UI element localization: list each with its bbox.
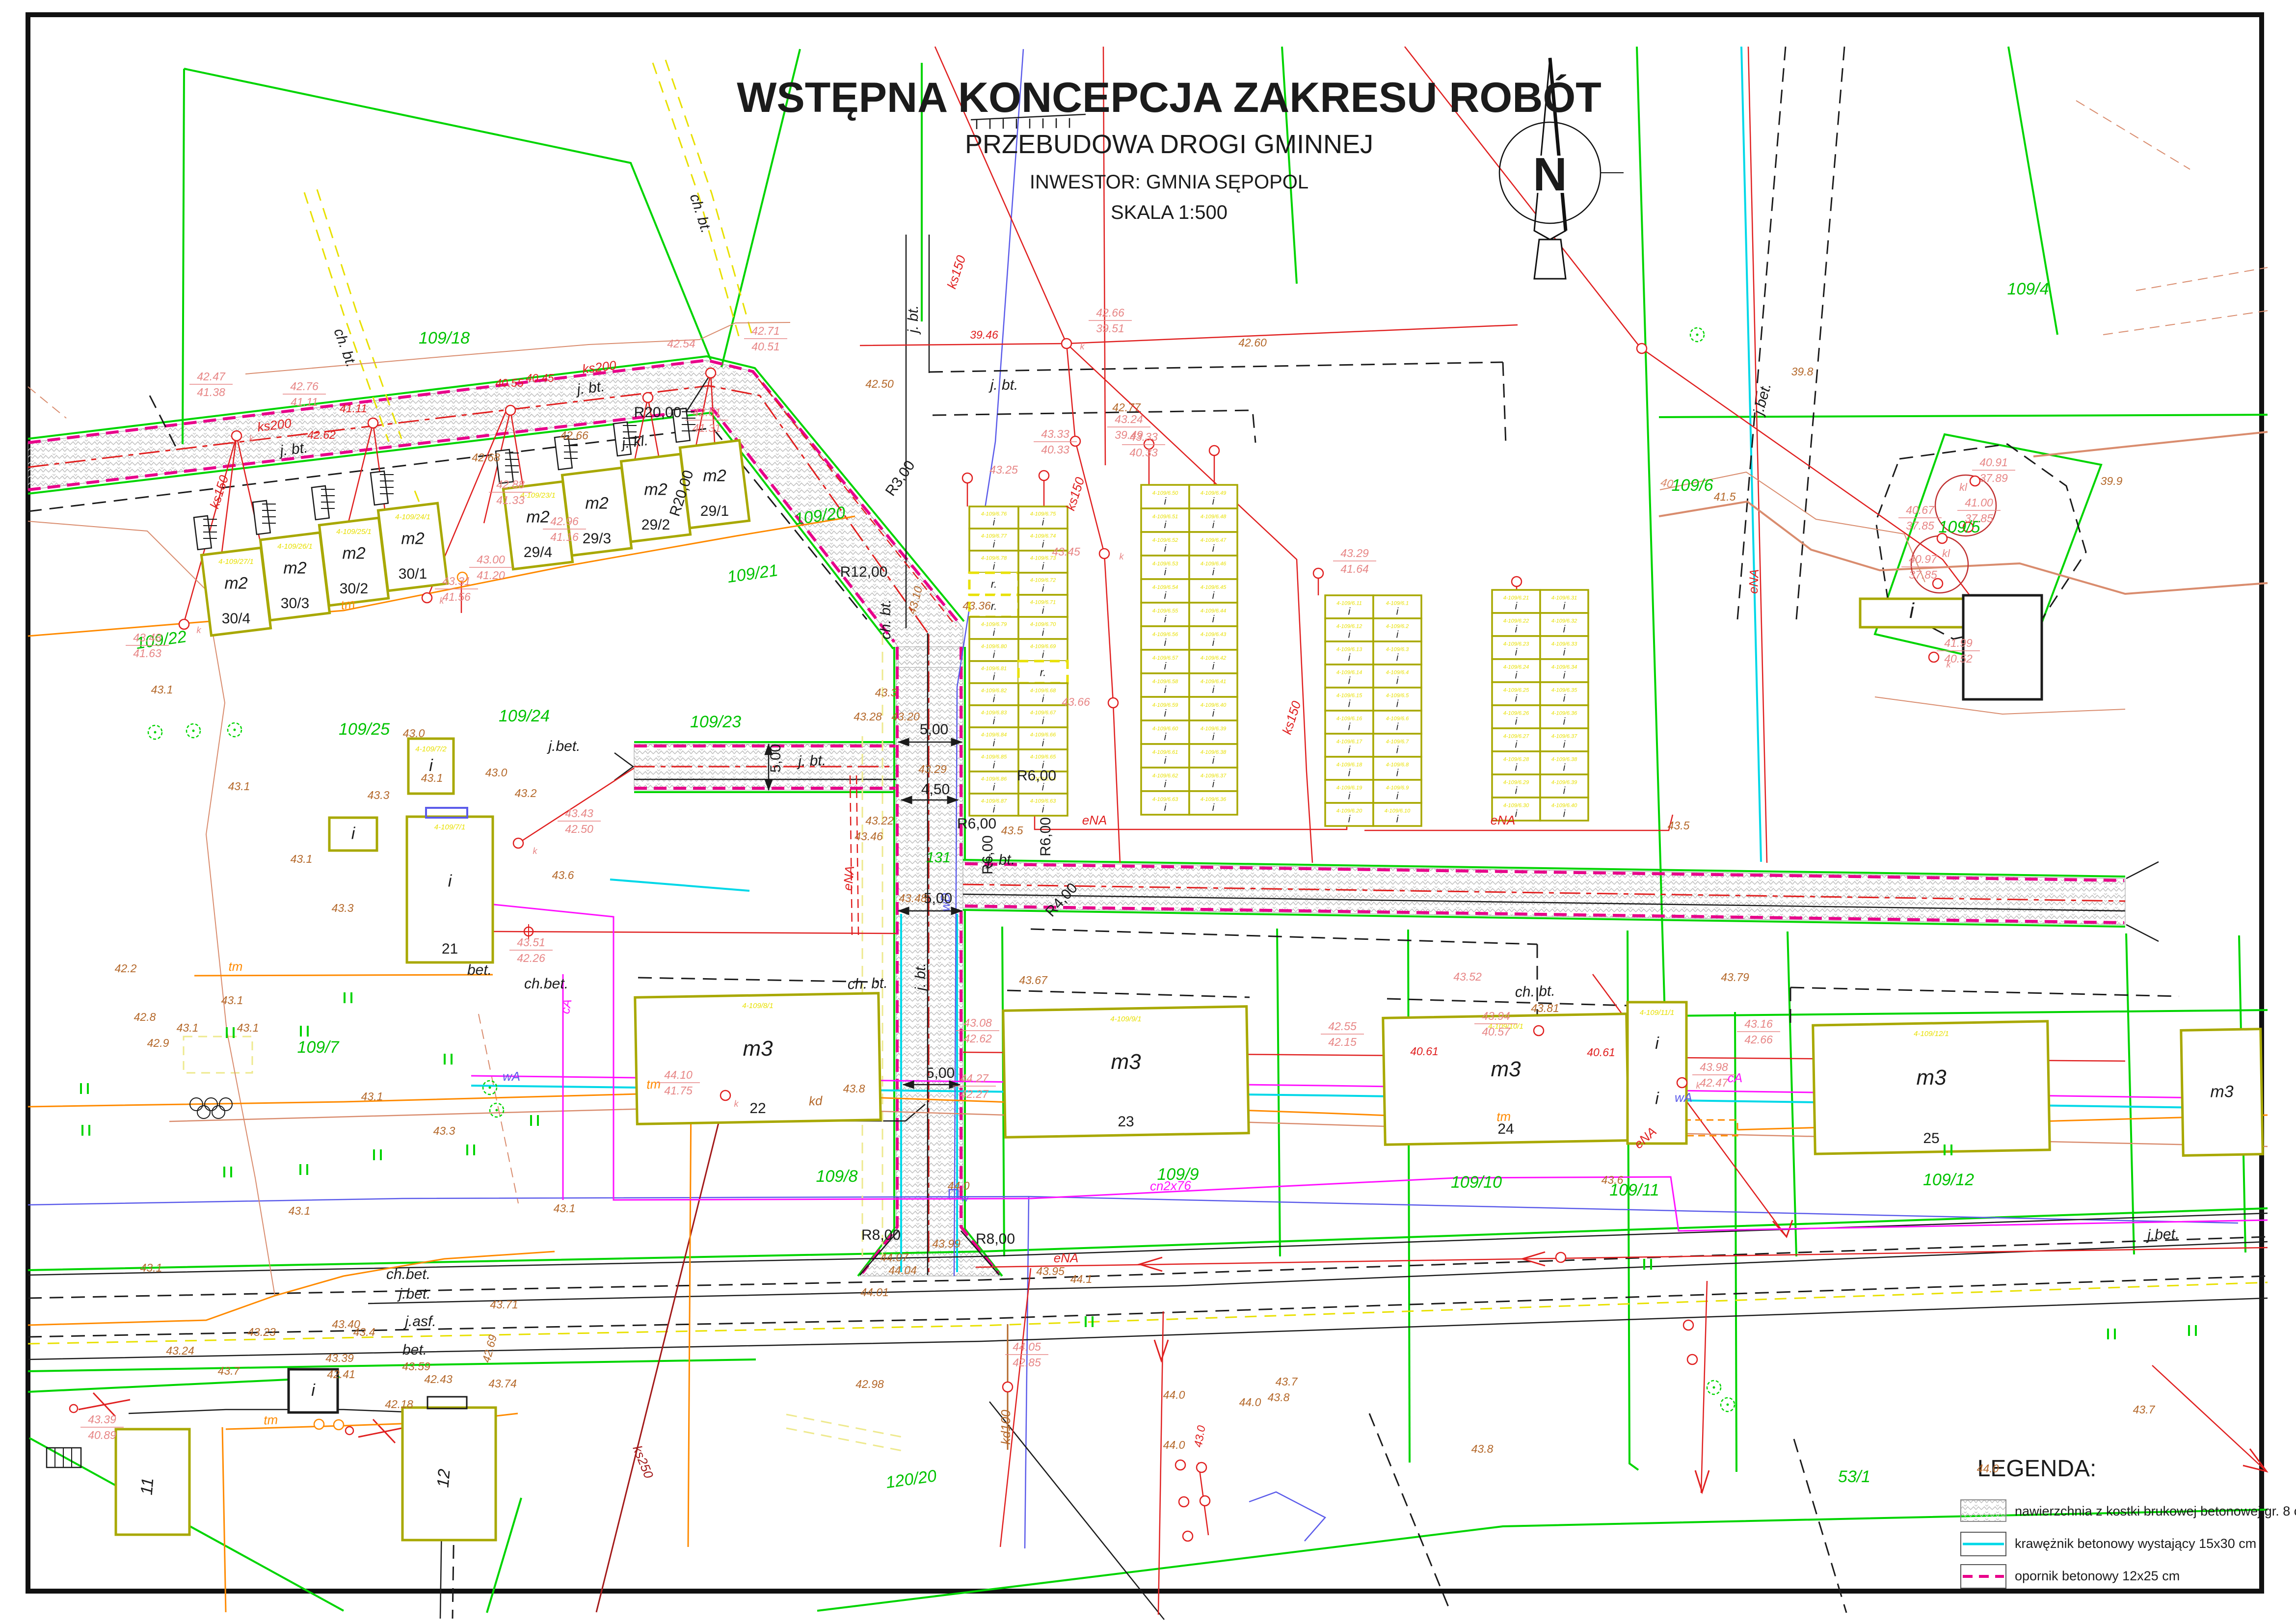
- elevation-top: 42.66: [1096, 306, 1124, 319]
- line-black: [2126, 925, 2159, 941]
- parcel-line: [184, 69, 711, 360]
- garage-cell-label: i: [1164, 543, 1167, 554]
- manhole: [1534, 1026, 1544, 1036]
- dimension-label: 5,00: [924, 890, 952, 906]
- surface-label: bet.: [402, 1342, 427, 1358]
- garage-cell-id: 4-109/6.39: [1201, 726, 1227, 732]
- garage-cell-id: 4-109/6.20: [1336, 808, 1362, 814]
- garage-cell-label: i: [1212, 779, 1215, 790]
- elevation-top: 42.61: [693, 406, 721, 419]
- garage-cell-id: 4-109/6.9: [1386, 785, 1409, 791]
- elevation-bottom: 41.20: [477, 569, 505, 582]
- existing-edge-dashed: [1737, 47, 1786, 619]
- manhole: [513, 838, 523, 848]
- garage-reserved-label: r.: [991, 600, 997, 612]
- garage-cell-label: i: [1212, 614, 1215, 625]
- yard-dashed: [184, 1037, 252, 1073]
- garage-cell-label: i: [1348, 791, 1351, 802]
- existing-edge-dashed: [1794, 1439, 1846, 1613]
- manhole: [368, 418, 378, 428]
- garage-cell-label: i: [1042, 738, 1044, 749]
- surface-label: j.asf.: [403, 1313, 436, 1330]
- parcel-label: 109/21: [726, 561, 779, 586]
- elevation-bottom: 42.15: [1328, 1036, 1357, 1048]
- spot-elevation: 42.50: [865, 377, 894, 390]
- garage-cell-label: i: [1164, 496, 1167, 507]
- survey-mark: [346, 1427, 353, 1435]
- garage-cell-label: i: [1396, 814, 1399, 825]
- building-id: 4-109/26/1: [277, 542, 313, 551]
- garage-cell-id: 4-109/6.8: [1386, 762, 1409, 768]
- garage-cell-id: 4-109/6.22: [1503, 618, 1529, 624]
- garage-cell-id: 4-109/6.38: [1201, 749, 1227, 755]
- garage-cell-label: i: [1212, 567, 1215, 578]
- garage-cell-id: 4-109/6.5: [1386, 693, 1409, 699]
- water-line: [1249, 1492, 1325, 1541]
- garage-cell-label: i: [1515, 601, 1518, 612]
- utility-label: tm: [340, 596, 356, 612]
- building-type: m3: [2210, 1083, 2233, 1101]
- garage-cell-label: i: [1212, 520, 1215, 531]
- legend-item-label: nawierzchnia z kostki brukowej betonowej…: [2015, 1504, 2296, 1518]
- manhole: [1070, 436, 1080, 446]
- garage-cell-label: i: [1212, 590, 1215, 601]
- elevation-bottom: 42.50: [565, 823, 593, 835]
- spot-elevation: 43.23: [247, 1326, 276, 1338]
- spot-elevation: 42.62: [307, 428, 336, 441]
- building-number: 22: [749, 1100, 766, 1117]
- garage-cell-label: i: [993, 694, 995, 705]
- garage-cell-label: i: [1563, 809, 1566, 820]
- spot-elevation: 42.43: [424, 1373, 453, 1385]
- grass-symbol: [2189, 1325, 2196, 1336]
- garage-cell-label: i: [993, 650, 995, 661]
- garage-cell-label: i: [1348, 814, 1351, 825]
- tm-line: [194, 975, 493, 976]
- dimension-label: 5,00: [920, 721, 948, 738]
- garage-cell-id: 4-109/6.68: [1030, 688, 1056, 694]
- dimension-label: 4,50: [921, 781, 950, 798]
- dimension-label: 5,00: [926, 1065, 955, 1081]
- building-number: 23: [1118, 1114, 1134, 1130]
- building-type: m2: [526, 508, 549, 527]
- manhole: [1062, 339, 1071, 348]
- surface-label: j.bet.: [2145, 1226, 2180, 1243]
- elevation-bottom: 41.16: [550, 531, 579, 543]
- utility-label: eNA: [1491, 813, 1516, 827]
- garage-cell-label: i: [1348, 699, 1351, 710]
- garage-cell-label: i: [1563, 786, 1566, 797]
- garage-cell-label: i: [1348, 745, 1351, 756]
- spot-elevation: 43.46: [854, 830, 883, 843]
- spot-elevation: 43.52: [1453, 970, 1482, 983]
- spot-elevation: 43.1: [421, 772, 443, 784]
- garage-reserved-label: r.: [1040, 666, 1046, 679]
- garage-cell-id: 4-109/6.81: [981, 666, 1007, 672]
- garage-cell-label: i: [993, 539, 995, 550]
- garage-cell-label: i: [1515, 670, 1518, 681]
- grass-symbol: [345, 992, 351, 1003]
- survey-mark: [373, 1419, 395, 1443]
- utility-label: tm: [646, 1077, 661, 1092]
- garage-cell-label: i: [1348, 676, 1351, 687]
- elevation-bottom: 37.85: [1909, 568, 1937, 581]
- utility-label: eNA: [840, 865, 857, 891]
- spot-elevation: 44.0: [1977, 1462, 1999, 1475]
- elevation-bottom: 42.85: [1013, 1356, 1041, 1369]
- garage-cell-label: i: [1212, 638, 1215, 648]
- spot-elevation: 43.3: [875, 686, 897, 699]
- parcel-label: 109/8: [816, 1167, 857, 1186]
- manhole-k: k: [249, 434, 254, 444]
- spot-elevation: 43.4: [353, 1326, 375, 1338]
- stairs-icon: [371, 471, 388, 505]
- garage-cell-label: i: [1042, 628, 1044, 639]
- dimension-label: R12,00: [840, 564, 888, 580]
- building-number: 29/3: [583, 531, 611, 547]
- elevation-bottom: 40.51: [751, 340, 780, 353]
- spot-elevation: 44.1: [1070, 1273, 1093, 1285]
- line-black: [2126, 862, 2159, 879]
- elevation-top: 42.47: [197, 370, 226, 383]
- garage-cell-label: i: [993, 517, 995, 528]
- manhole: [643, 393, 653, 402]
- spot-elevation: 43.1: [237, 1021, 259, 1034]
- garage-cell-label: i: [993, 760, 995, 771]
- building-id: 4-109/9/1: [1110, 1015, 1141, 1023]
- parcel-label: 109/25: [339, 720, 390, 739]
- stairs-icon: [312, 486, 329, 520]
- garage-cell-id: 4-109/6.38: [1551, 757, 1577, 763]
- manhole: [1209, 446, 1219, 455]
- legend-item-label: krawężnik betonowy wystający 15x30 cm: [2015, 1536, 2256, 1551]
- manhole: [1003, 1382, 1013, 1392]
- tm-line: [688, 1093, 691, 1547]
- manhole: [1683, 1320, 1693, 1330]
- grass-symbol: [1644, 1259, 1651, 1270]
- garage-cell-id: 4-109/6.40: [1551, 803, 1577, 809]
- garage-cell-id: 4-109/6.57: [1152, 655, 1178, 661]
- garage-cell-label: i: [993, 804, 995, 815]
- manhole: [1200, 1496, 1210, 1506]
- spot-elevation: 43.1: [291, 852, 313, 865]
- parcel-label: 109/24: [499, 707, 550, 725]
- stairs-icon: [194, 516, 212, 550]
- manhole: [422, 593, 432, 603]
- garage-cell-id: 4-109/6.76: [981, 511, 1007, 517]
- spot-elevation: 43.6: [552, 869, 574, 881]
- spot-elevation: 43.71: [490, 1298, 518, 1311]
- garage-cell-id: 4-109/6.75: [1030, 511, 1056, 517]
- elevation-top: 43.33: [1041, 427, 1069, 440]
- utility-label: tm: [229, 959, 243, 974]
- tm-line: [28, 1251, 555, 1325]
- manhole: [1197, 1463, 1206, 1472]
- spot-elevation: 40.55: [495, 376, 524, 389]
- utility-red: [494, 932, 896, 933]
- garage-cell-id: 4-109/6.67: [1030, 710, 1056, 716]
- existing-edge-dashed: [929, 362, 1503, 372]
- spot-elevation: 39.46: [970, 328, 998, 341]
- garage-cell-label: i: [1164, 590, 1167, 601]
- manhole-k: k: [734, 1099, 739, 1109]
- line-black: [368, 1242, 2268, 1304]
- existing-edge-dashed: [1031, 929, 1537, 944]
- garage-cell-label: i: [1348, 768, 1351, 779]
- spot-elevation: 43.95: [1036, 1265, 1065, 1278]
- garage-cell-id: 4-109/6.60: [1152, 726, 1178, 732]
- garage-cell-id: 4-109/6.3: [1386, 647, 1409, 653]
- garage-cell-id: 4-109/6.59: [1152, 702, 1178, 708]
- building-id: 4-109/7/1: [434, 823, 465, 831]
- spot-elevation: 43.5: [1001, 824, 1023, 837]
- spot-elevation: 43.28: [854, 710, 882, 723]
- garage-cell-label: i: [1042, 517, 1044, 528]
- manhole: [1099, 549, 1109, 559]
- spot-elevation: 43.67: [1019, 974, 1048, 986]
- existing-edge-dashed: [1503, 362, 1506, 444]
- utility-red: [1067, 344, 1120, 863]
- utility-label: cA: [558, 998, 575, 1015]
- garage-cell-label: i: [1042, 539, 1044, 550]
- elevation-top: 40.67: [1906, 504, 1935, 516]
- garage-cell-id: 4-109/6.50: [1152, 490, 1178, 496]
- garage-cell-id: 4-109/6.44: [1201, 608, 1227, 614]
- elevation-top: 41.99: [1944, 637, 1973, 649]
- spot-elevation: 40: [1660, 476, 1675, 490]
- spot-elevation: 43.3: [368, 789, 390, 801]
- building-number: 30/4: [222, 611, 250, 627]
- elevation-bottom: 41.11: [291, 396, 318, 408]
- garage-cell-label: i: [1396, 791, 1399, 802]
- garage-cell-id: 4-109/6.83: [981, 710, 1007, 716]
- spot-elevation: 43.66: [1062, 695, 1090, 708]
- parcel-label: 109/4: [2007, 280, 2049, 298]
- spot-elevation: 42.66: [560, 429, 588, 442]
- building-id: 4-109/8/1: [742, 1002, 773, 1010]
- existing-edge-dashed: [1387, 999, 1629, 1006]
- utility-label: eNA: [1746, 568, 1762, 594]
- elevation-bottom: 42.26: [517, 952, 545, 964]
- garage-cell-id: 4-109/6.40: [1201, 702, 1227, 708]
- garage-cell-id: 4-109/6.72: [1030, 578, 1056, 584]
- garage-cell-label: i: [1348, 607, 1351, 617]
- existing-edge-dashed: [933, 410, 1255, 443]
- contour-line: [2033, 432, 2268, 456]
- building-outline: [1963, 595, 2042, 699]
- garage-cell-label: i: [1563, 740, 1566, 750]
- spot-elevation: 43.8: [1268, 1391, 1290, 1404]
- spot-elevation: 43.1: [140, 1261, 162, 1274]
- garage-cell-id: 4-109/6.17: [1336, 739, 1362, 745]
- garage-cell-label: i: [1042, 650, 1044, 661]
- grass-symbol: [374, 1149, 381, 1160]
- garage-cell-id: 4-109/6.46: [1201, 561, 1227, 567]
- garage-cell-label: i: [1212, 708, 1215, 719]
- building-type: m3: [743, 1037, 773, 1061]
- garage-cell-label: i: [993, 738, 995, 749]
- building-id: 4-109/11/1: [1640, 1009, 1675, 1017]
- garage-cell-id: 4-109/6.19: [1336, 785, 1362, 791]
- garage-cell-label: i: [1212, 543, 1215, 554]
- garage-cell-id: 4-109/6.1: [1386, 601, 1409, 607]
- utility-label: ks150: [1279, 699, 1304, 736]
- manhole-k: k: [533, 846, 538, 856]
- garage-reserved-label: r.: [991, 578, 997, 590]
- flow-arrow: [1154, 1340, 1168, 1360]
- garage-cell-id: 4-109/6.80: [981, 644, 1007, 650]
- garage-cell-id: 4-109/6.13: [1336, 647, 1362, 653]
- garage-cell-id: 4-109/6.18: [1336, 762, 1362, 768]
- elevation-bottom: 41.64: [1340, 562, 1369, 575]
- garage-cell-label: i: [1515, 786, 1518, 797]
- spot-elevation: 43.0: [403, 727, 425, 740]
- parcel-label: 109/12: [1923, 1171, 1974, 1189]
- garage-cell-id: 4-109/6.78: [981, 556, 1007, 561]
- spot-elevation: 42.2: [115, 962, 137, 975]
- spot-elevation: 43.81: [1531, 1002, 1559, 1014]
- garage-cell-id: 4-109/6.56: [1152, 632, 1178, 638]
- spot-elevation: 42.69: [480, 1333, 499, 1364]
- title-line3: INWESTOR: GMNIA SĘPOPOL: [1030, 171, 1308, 193]
- garage-cell-label: i: [1348, 722, 1351, 733]
- parcel-line: [2126, 933, 2134, 1254]
- surface-label: ch. bt.: [847, 975, 888, 993]
- spot-elevation: 43.3: [433, 1124, 455, 1137]
- spot-elevation: 43.0: [1191, 1424, 1207, 1448]
- spot-elevation: 43.1: [228, 780, 250, 793]
- spot-elevation: 43.1: [177, 1021, 199, 1034]
- spot-elevation: 43.1: [221, 994, 243, 1007]
- elevation-bottom: 41.56: [442, 590, 471, 603]
- garage-cell-id: 4-109/6.37: [1201, 773, 1227, 779]
- garage-cell-id: 4-109/6.31: [1551, 595, 1577, 601]
- spot-elevation: 44.01: [860, 1286, 889, 1299]
- building: [1963, 595, 2042, 699]
- surface-label: ch.bet.: [386, 1266, 430, 1282]
- grass-symbol: [224, 1167, 231, 1177]
- grass-symbol: [82, 1125, 89, 1136]
- manhole: [1175, 1460, 1185, 1470]
- elevation-top: 42.76: [290, 380, 319, 393]
- garage-cell-id: 4-109/6.37: [1551, 734, 1577, 740]
- elevation-bottom: 41.33: [496, 494, 525, 506]
- garage-cell-id: 4-109/6.70: [1030, 622, 1056, 628]
- contour-dashed: [28, 387, 66, 418]
- manhole: [1556, 1252, 1566, 1262]
- building-type: m2: [401, 530, 424, 548]
- garage-cell-label: i: [1515, 763, 1518, 773]
- garage-cell-id: 4-109/6.69: [1030, 644, 1056, 650]
- dimension-label: R8,00: [976, 1231, 1015, 1247]
- garage-cell-id: 4-109/6.54: [1152, 585, 1178, 590]
- surface-label: j. bt.: [912, 963, 929, 993]
- elevation-bottom: 40.33: [1129, 446, 1158, 459]
- garage-cell-label: i: [1212, 732, 1215, 743]
- building: [1628, 1002, 1686, 1144]
- elevation-top: 43.00: [477, 553, 505, 566]
- elevation-top: 43.08: [963, 1016, 992, 1029]
- spot-elevation: 43.0: [485, 766, 507, 779]
- parcel-line: [817, 1510, 2268, 1611]
- spot-elevation: 43.79: [1721, 971, 1749, 984]
- garage-cell-label: i: [1515, 809, 1518, 820]
- garage-cell-id: 4-109/6.27: [1503, 734, 1529, 740]
- elevation-top: 40.97: [1909, 553, 1938, 565]
- garage-cell-id: 4-109/6.29: [1503, 780, 1529, 786]
- garage-cell-id: 4-109/6.45: [1201, 585, 1227, 590]
- grass-symbol: [300, 1164, 307, 1175]
- garage-cell-id: 4-109/6.34: [1551, 665, 1577, 670]
- spot-elevation: 43.25: [989, 463, 1018, 476]
- path-paleyellow-dashed: [786, 1414, 902, 1437]
- spot-elevation: 43.5: [1668, 819, 1690, 832]
- garage-cell-label: i: [993, 628, 995, 639]
- garage-block: [1325, 595, 1421, 826]
- garage-cell-label: i: [1042, 804, 1044, 815]
- contour-dashed: [2136, 267, 2268, 291]
- garage-cell-id: 4-109/6.58: [1152, 679, 1178, 685]
- water-line: [28, 1197, 2238, 1223]
- utility-label: eNA: [1082, 813, 1107, 827]
- garage-cell-id: 4-109/6.55: [1152, 608, 1178, 614]
- garage-cell-id: 4-109/6.63: [1152, 797, 1178, 802]
- garage-cell-id: 4-109/6.36: [1551, 711, 1577, 717]
- parcel-label: 109/7: [297, 1038, 339, 1057]
- garage-cell-label: i: [1164, 638, 1167, 648]
- spot-elevation: 43.1: [361, 1090, 383, 1103]
- parcel-label: 109/23: [690, 713, 741, 731]
- spot-elevation: 43.45: [1052, 545, 1080, 558]
- spot-elevation: 39.8: [1791, 365, 1814, 378]
- elevation-bottom: 37.89: [1979, 472, 2008, 484]
- utility-label: tm: [1496, 1109, 1511, 1124]
- garage-cell-label: i: [1563, 670, 1566, 681]
- surface-label: bet.: [467, 962, 492, 978]
- survey-mark: [70, 1405, 78, 1412]
- garage-cell-id: 4-109/6.6: [1386, 716, 1409, 722]
- spot-elevation: 40.45: [526, 372, 554, 384]
- spot-elevation: 42.54: [667, 337, 695, 350]
- garage-cell-label: i: [1396, 653, 1399, 664]
- garage-cell-id: 4-109/6.7: [1386, 739, 1409, 745]
- building-type: m2: [283, 559, 306, 578]
- spot-elevation: 43.6: [1602, 1173, 1624, 1186]
- elevation-bottom: 40.89: [88, 1429, 116, 1441]
- garage-cell-id: 4-109/6.65: [1030, 754, 1056, 760]
- building-id: 4-109/7/2: [415, 745, 447, 753]
- spot-elevation: 42.18: [385, 1398, 413, 1411]
- garage-cell-label: i: [1515, 717, 1518, 727]
- garage-cell-id: 4-109/6.41: [1201, 679, 1227, 685]
- elevation-top: 43.39: [88, 1413, 116, 1426]
- utility-label: ks150: [1063, 475, 1087, 512]
- manhole: [232, 431, 241, 441]
- line-black: [28, 1213, 2268, 1275]
- surface-label: ch.bet.: [524, 976, 568, 992]
- garage-cell-label: i: [1396, 745, 1399, 756]
- elevation-top: 42.96: [550, 515, 579, 528]
- garage-cell-label: i: [1563, 763, 1566, 773]
- dimension-label: R6,00: [1017, 768, 1056, 784]
- garage-cell-id: 4-109/6.24: [1503, 665, 1529, 670]
- title-line2: PRZEBUDOWA DROGI GMINNEJ: [965, 130, 1373, 159]
- tree-symbol: [234, 729, 236, 731]
- garage-cell-label: i: [1396, 676, 1399, 687]
- spot-elevation: 42.9: [147, 1037, 169, 1049]
- building-number: 29/2: [641, 517, 670, 533]
- surface-label: ch. bt.: [878, 599, 894, 639]
